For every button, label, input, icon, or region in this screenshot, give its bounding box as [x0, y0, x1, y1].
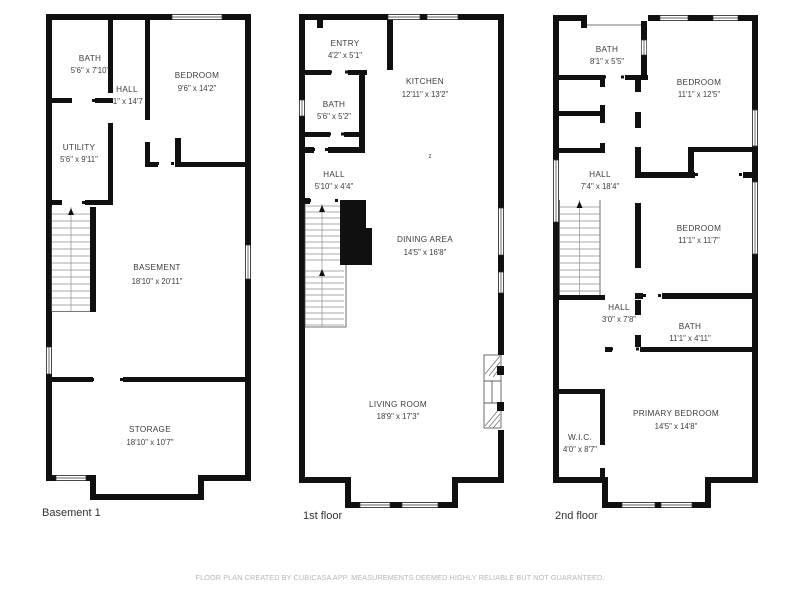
room-dims: 5'10" x 4'4" [315, 182, 354, 191]
room-dims: 5'6" x 5'2" [317, 112, 351, 121]
room-name: UTILITY [63, 143, 96, 152]
room-name: STORAGE [129, 425, 171, 434]
room-dims: 5'6" x 9'11" [60, 155, 98, 164]
room-dims: 5'6" x 7'10" [71, 66, 110, 75]
room-dims: 18'10" x 10'7" [126, 438, 173, 447]
window [47, 347, 52, 374]
window [172, 15, 222, 20]
room-dims: 14'5" x 16'8" [404, 248, 447, 257]
window [499, 272, 504, 293]
room-name: BATH [679, 322, 701, 331]
room-name: BEDROOM [677, 224, 721, 233]
window [427, 15, 458, 20]
room-name: BASEMENT [133, 263, 180, 272]
room-dims: 12'11" x 13'2" [402, 90, 449, 99]
first-floor-staircase [305, 204, 346, 327]
room-dims: 4'2" x 5'1" [328, 51, 362, 60]
first-floor-plan: z ENTRY 4'2" x 5'1" BATH 5'6" x 5'2" KIT… [299, 14, 504, 522]
window [499, 208, 504, 255]
window [713, 16, 738, 21]
room-name: HALL [116, 85, 138, 94]
window [661, 503, 692, 508]
window [300, 100, 305, 116]
room-name: LIVING ROOM [369, 400, 427, 409]
room-dims: 3'0" x 7'8" [602, 315, 636, 324]
window [753, 182, 758, 254]
window [360, 503, 390, 508]
basement-door-ticks [59, 99, 174, 381]
room-name: BEDROOM [677, 78, 721, 87]
window [402, 503, 438, 508]
disclaimer-text: FLOOR PLAN CREATED BY CUBICASA APP. MEAS… [196, 573, 605, 582]
room-dims: 8'1" x 5'5" [590, 57, 624, 66]
window [388, 15, 420, 20]
basement-staircase [52, 207, 91, 312]
second-floor-staircase [560, 200, 601, 295]
plan-annotation: z [429, 154, 432, 160]
first-floor-walls [299, 14, 504, 508]
room-name: DINING AREA [397, 235, 453, 244]
room-dims: 11'1" x 11'7" [678, 236, 720, 245]
room-dims: 14'5" x 14'8" [655, 422, 698, 431]
stairs-up-arrow-icon [319, 269, 325, 276]
room-name: BATH [79, 54, 101, 63]
floor-label-1st: 1st floor [303, 510, 342, 522]
room-name: HALL [323, 170, 345, 179]
room-dims: 18'9" x 17'3" [377, 412, 420, 421]
floor-plan-page: BATH 5'6" x 7'10" HALL '1" x 14'7 BEDROO… [0, 0, 800, 600]
room-name: BEDROOM [175, 71, 219, 80]
second-floor-plan: BATH 8'1" x 5'5" BEDROOM 11'1" x 12'5" H… [553, 15, 758, 522]
window [56, 476, 86, 481]
stairs-up-arrow-icon [68, 208, 74, 215]
stairs-up-arrow-icon [577, 201, 583, 208]
window [246, 245, 251, 279]
floor-plan-drawing: BATH 5'6" x 7'10" HALL '1" x 14'7 BEDROO… [0, 0, 800, 600]
window [554, 160, 559, 222]
room-name: HALL [589, 170, 611, 179]
basement-room-labels: BATH 5'6" x 7'10" HALL '1" x 14'7 BEDROO… [60, 54, 219, 447]
basement-plan: BATH 5'6" x 7'10" HALL '1" x 14'7 BEDROO… [42, 14, 251, 519]
room-name: W.I.C. [568, 433, 592, 442]
room-name: PRIMARY BEDROOM [633, 409, 719, 418]
window [660, 16, 688, 21]
window [642, 40, 647, 55]
window [622, 503, 655, 508]
room-dims: 18'10" x 20'11" [132, 277, 183, 286]
floor-label-basement: Basement 1 [42, 507, 101, 519]
room-dims: 9'6" x 14'2" [178, 84, 217, 93]
first-floor-windows [300, 15, 504, 508]
window [753, 110, 758, 146]
room-name: HALL [608, 303, 630, 312]
room-dims: 11'1" x 4'11" [669, 334, 711, 343]
room-dims: 4'0" x 8'7" [563, 445, 597, 454]
room-name: KITCHEN [406, 77, 444, 86]
exterior-stair [484, 355, 504, 428]
room-dims: 7'4" x 18'4" [581, 182, 620, 191]
room-name: BATH [596, 45, 618, 54]
room-dims: '1" x 14'7 [111, 97, 142, 106]
room-name: ENTRY [330, 39, 359, 48]
room-name: BATH [323, 100, 345, 109]
floor-label-2nd: 2nd floor [555, 510, 598, 522]
room-dims: 11'1" x 12'5" [678, 90, 720, 99]
